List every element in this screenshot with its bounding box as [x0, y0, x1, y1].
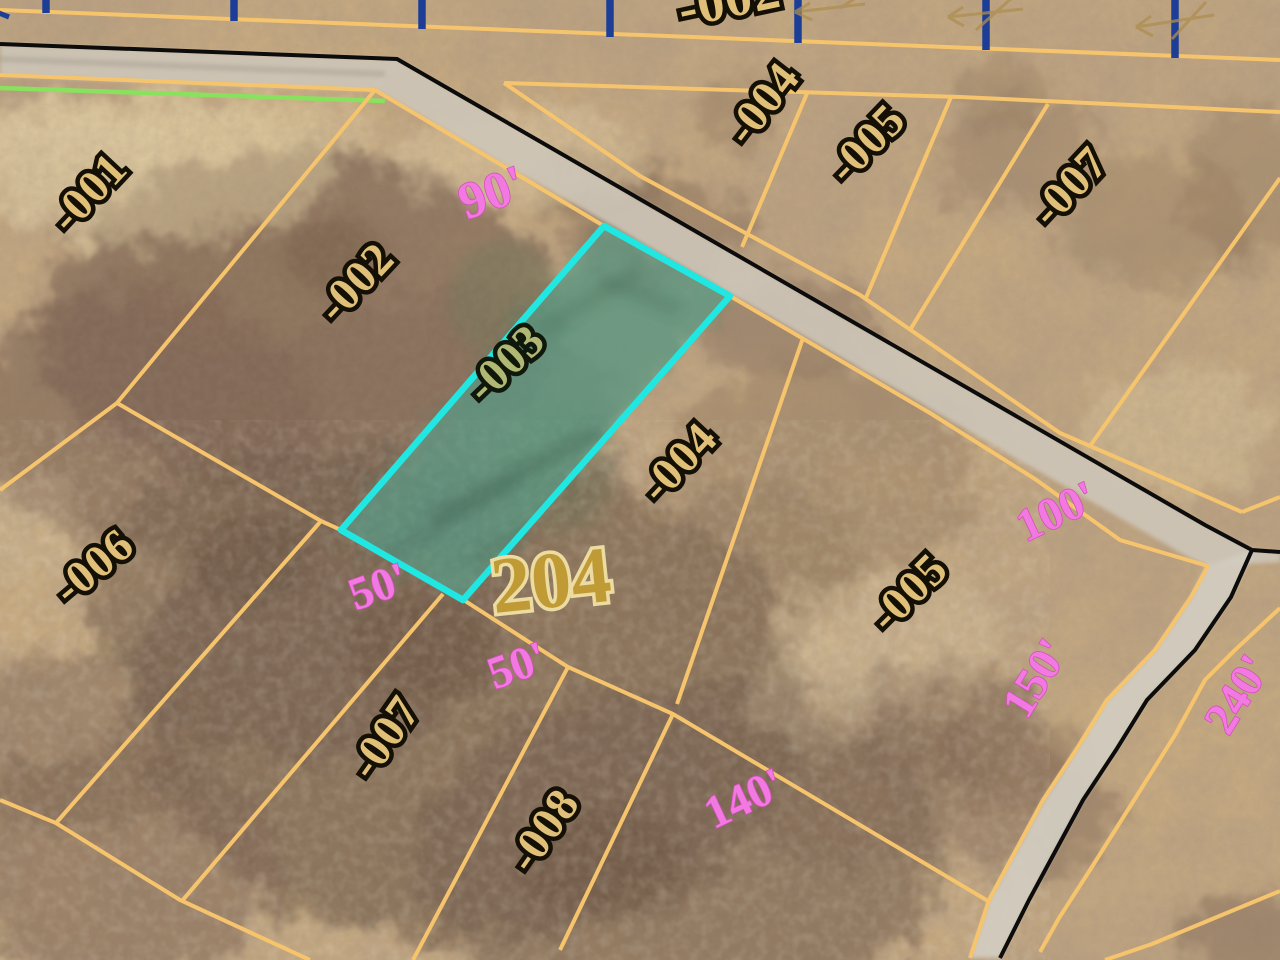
svg-text:204: 204 [487, 531, 616, 631]
